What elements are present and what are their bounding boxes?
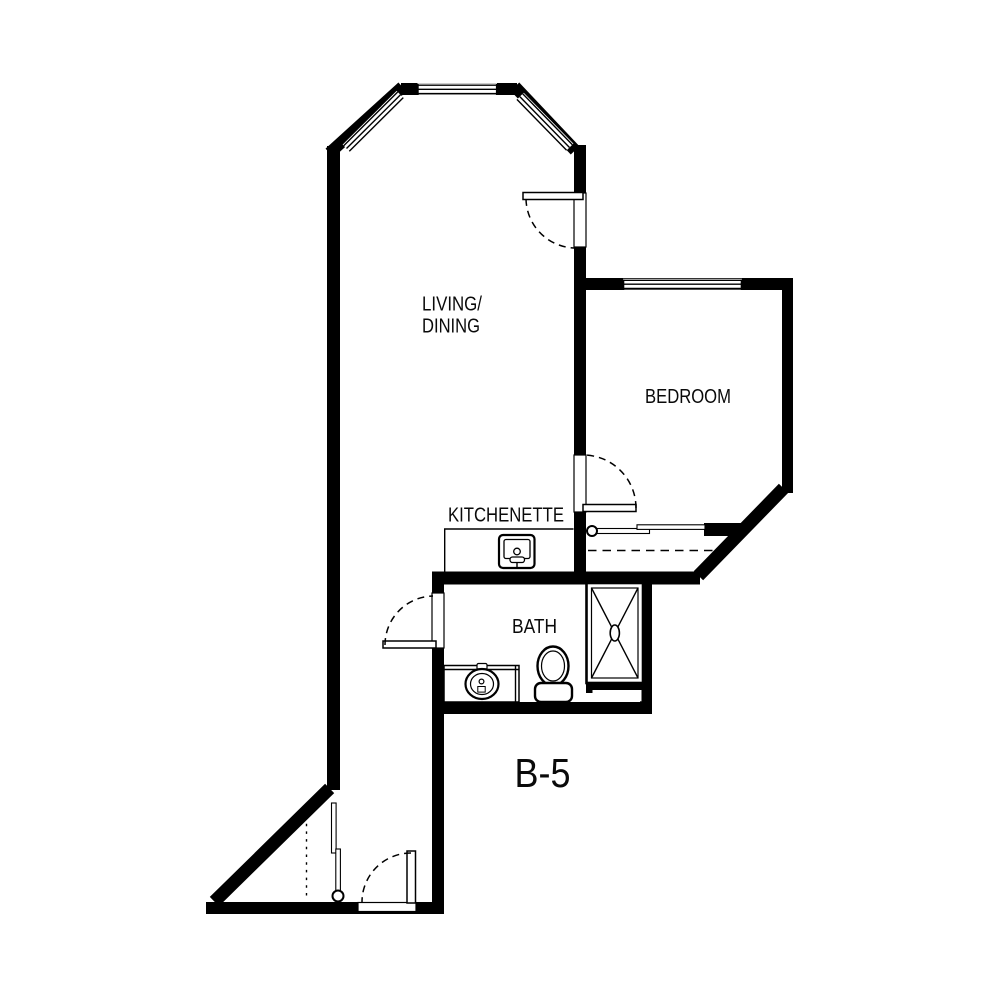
- kitchenette-label: KITCHENETTE: [448, 504, 564, 527]
- bedroom-window-icon: [623, 279, 742, 290]
- toilet-icon: [535, 647, 572, 703]
- shower-threshold: [593, 690, 642, 701]
- bedroom-door-icon: [574, 455, 636, 512]
- bath-label: BATH: [512, 615, 557, 638]
- wall-closet-stub: [704, 523, 743, 536]
- shower-icon: [586, 583, 647, 701]
- bath-door-icon: [383, 593, 444, 648]
- balcony-door-icon: [523, 193, 586, 249]
- bay-window-top-icon: [418, 83, 498, 95]
- kitchenette-area: [444, 529, 574, 572]
- floor-plan-page: LIVING/ DINING BEDROOM KITCHENETTE BATH …: [0, 0, 1000, 1000]
- wall-entry-diagonal: [219, 793, 325, 897]
- kitchenette-sink-icon: [499, 535, 535, 568]
- bay-window-left-icon: [344, 92, 404, 151]
- vanity-sink-icon: [444, 664, 519, 703]
- unit-label: B-5: [515, 750, 571, 796]
- living-dining-label-line2: DINING: [422, 315, 480, 338]
- bay-window-right-icon: [517, 94, 573, 151]
- entry-door-icon: [358, 851, 416, 912]
- walls: [206, 89, 793, 914]
- floor-plan: LIVING/ DINING BEDROOM KITCHENETTE BATH …: [0, 0, 1000, 1000]
- bath-fixtures: [444, 583, 647, 702]
- living-dining-label-line1: LIVING/: [422, 293, 482, 316]
- bedroom-closet-rod-icon: [587, 525, 716, 551]
- bedroom-label: BEDROOM: [645, 385, 731, 408]
- doors: [358, 193, 636, 912]
- windows: [344, 83, 742, 289]
- entry-closet-rod-icon: [307, 803, 344, 902]
